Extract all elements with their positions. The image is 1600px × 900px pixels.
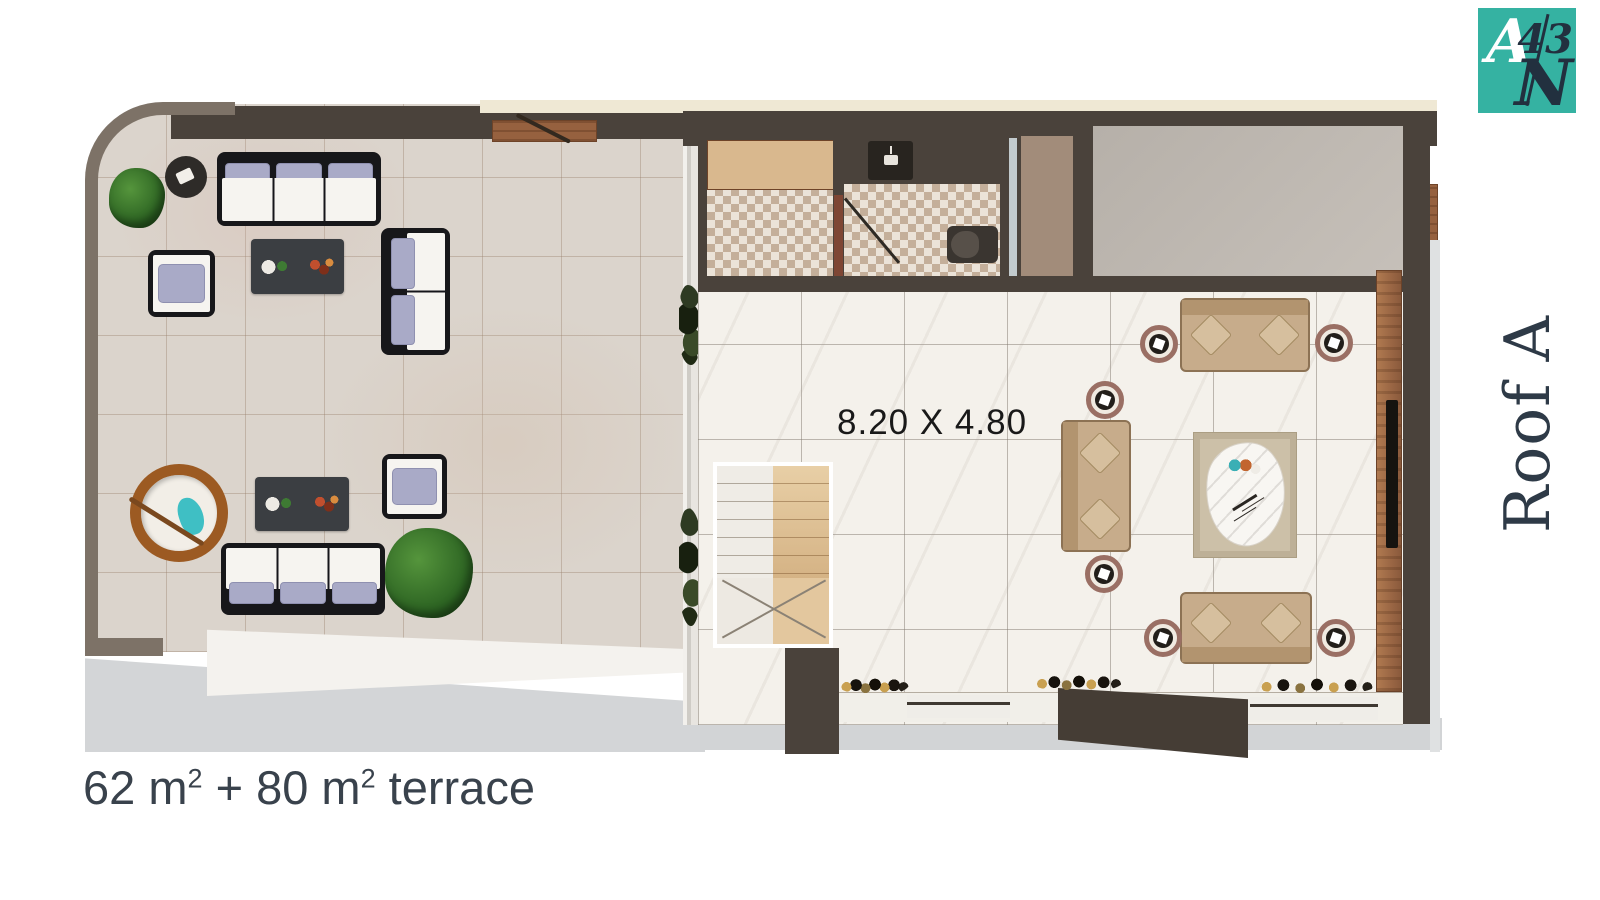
bathroom-vanity-counter — [707, 140, 835, 190]
stair-landing — [717, 578, 829, 644]
round-side-table — [1144, 619, 1182, 657]
area-caption: 62 m2 + 80 m2 terrace — [83, 760, 683, 830]
living-sofa-top — [1180, 298, 1310, 372]
room-dimension-label: 8.20 X 4.80 — [837, 403, 1097, 445]
bathroom-door — [834, 195, 843, 283]
potted-plant-icon — [385, 528, 473, 618]
area-value-2: + 80 m — [203, 761, 361, 814]
round-side-table — [1085, 555, 1123, 593]
terrace-side-table — [165, 156, 207, 198]
hanging-egg-chair — [130, 464, 228, 562]
terrace-armchair-left — [148, 250, 215, 317]
sofa-seat — [222, 178, 376, 221]
closet-panel — [1017, 132, 1077, 290]
staircase — [713, 462, 833, 648]
area-suffix: terrace — [376, 761, 535, 814]
round-side-table — [1317, 619, 1355, 657]
terrace-sofa-right — [381, 228, 450, 355]
stair-steps-right — [773, 466, 829, 578]
brand-logo: A 43 N — [1478, 8, 1576, 113]
window-right — [1250, 697, 1378, 720]
area-superscript: 2 — [188, 763, 203, 793]
sofa-pillows — [229, 582, 377, 604]
bottom-left-wall — [785, 648, 839, 754]
sofa-pillow — [1260, 602, 1302, 644]
sofa-pillow — [1258, 314, 1300, 356]
exterior-right-strip — [1430, 240, 1440, 752]
terrace-coffee-table-2 — [255, 477, 349, 531]
chair-pillow — [158, 264, 205, 303]
interior-bottom-wall — [698, 276, 1417, 292]
toilet-icon — [947, 226, 998, 263]
logo-letter-n: N — [1515, 52, 1574, 116]
round-side-table — [1315, 324, 1353, 362]
round-side-table — [1140, 325, 1178, 363]
tv-icon — [1386, 400, 1398, 548]
indoor-right-wall — [1403, 111, 1430, 724]
terrace-bottom-wall — [85, 638, 163, 656]
sofa-pillow — [1079, 498, 1121, 540]
glass-door-strip — [1009, 138, 1017, 288]
floor-plan: 8.20 X 4.80 — [85, 100, 1450, 760]
terrace-left-wall — [85, 242, 98, 642]
roof-name-label: Roof A — [1476, 259, 1580, 589]
terrace-sofa-top — [217, 152, 381, 226]
potted-plant-icon — [109, 168, 165, 228]
terrace-sofa-bottom — [221, 543, 385, 615]
terrace-armchair-bottom — [382, 454, 447, 519]
bathroom-right-wall — [1000, 111, 1009, 291]
area-value-1: 62 m — [83, 761, 188, 814]
sofa-pillow — [1190, 602, 1232, 644]
living-sofa-bottom — [1180, 592, 1312, 664]
page-background: 8.20 X 4.80 Roof A 62 m2 + 80 m2 terrace… — [0, 0, 1600, 900]
bathroom-left-floor — [707, 188, 835, 288]
sink-icon — [868, 141, 913, 180]
window-left — [907, 695, 1010, 718]
roof-skylight-room — [1093, 126, 1409, 276]
area-superscript: 2 — [361, 763, 376, 793]
sofa-pillow — [1190, 314, 1232, 356]
chair-pillow — [392, 468, 437, 505]
terrace-curved-corner-wall — [85, 102, 235, 252]
terrace-glass-partition — [683, 146, 699, 725]
stair-steps-left — [717, 466, 773, 578]
bathroom-left-wall — [698, 111, 707, 291]
bottom-wall-wedge — [1058, 688, 1248, 758]
sofa-pillows — [391, 238, 415, 345]
terrace-coffee-table-1 — [251, 239, 344, 294]
mid-wall — [1077, 111, 1093, 291]
